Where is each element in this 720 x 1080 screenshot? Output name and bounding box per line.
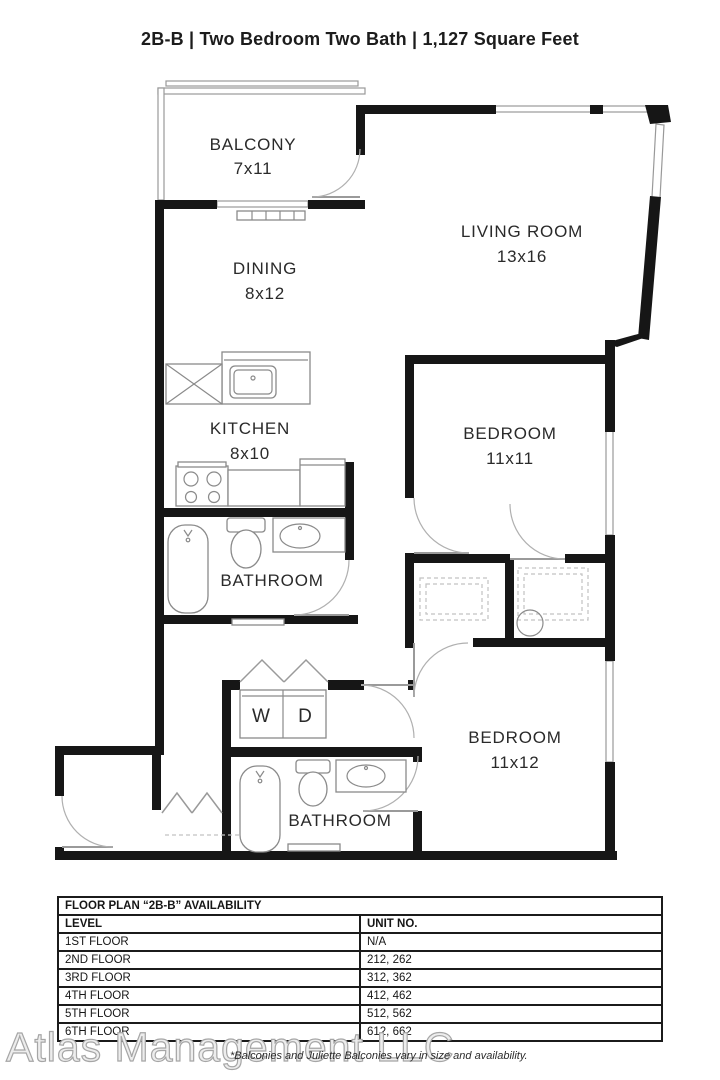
unit-cell: 412, 462 (360, 987, 662, 1005)
bedroom1-label: BEDROOM (463, 424, 556, 443)
washer-label: W (252, 706, 270, 727)
entry-closet-bifold-left (162, 793, 192, 813)
column-header-unit: UNIT NO. (360, 915, 662, 933)
laundry-bifold-door-left (240, 660, 284, 682)
bedroom2-door-arc (414, 643, 468, 697)
window-sill-icon (237, 211, 305, 220)
unit-cell: 512, 562 (360, 1005, 662, 1023)
closet-door-arc (510, 504, 565, 559)
table-row: 4TH FLOOR 412, 462 (58, 987, 662, 1005)
unit-cell: 212, 262 (360, 951, 662, 969)
floor-plan-page: 2B-B | Two Bedroom Two Bath | 1,127 Squa… (0, 0, 720, 1080)
level-cell: 3RD FLOOR (58, 969, 360, 987)
level-cell: 5TH FLOOR (58, 1005, 360, 1023)
bedroom2-window (606, 661, 613, 762)
bedroom1-dims: 11x11 (486, 449, 534, 468)
balcony-sliding-door (217, 201, 308, 207)
bedroom2-label: BEDROOM (468, 728, 561, 747)
bathroom2-recess (288, 844, 340, 851)
living-room-label: LIVING ROOM (461, 222, 583, 241)
floor-plan: BALCONY 7x11 LIVING ROOM 13x16 DINING 8x… (0, 78, 720, 878)
kitchen-sink-icon (230, 366, 276, 398)
bedroom1-door-arc (414, 498, 469, 553)
living-room-dims: 13x16 (497, 247, 547, 266)
level-cell: 4TH FLOOR (58, 987, 360, 1005)
balcony-railing-outer (166, 81, 358, 86)
entry-closet-bifold-right (192, 793, 222, 813)
page-title: 2B-B | Two Bedroom Two Bath | 1,127 Squa… (0, 0, 720, 78)
stove-icon (176, 466, 228, 506)
balcony-dims: 7x11 (234, 159, 273, 178)
table-row: 1ST FLOOR N/A (58, 933, 662, 951)
footer: Atlas Management LLC *Balconies and Juli… (0, 1038, 720, 1080)
kitchen-label: KITCHEN (210, 419, 290, 438)
bathroom1-recess (232, 619, 284, 625)
living-room-window-slant (652, 124, 664, 198)
level-cell: 1ST FLOOR (58, 933, 360, 951)
balcony-railing-left (158, 88, 164, 200)
column-header-level: LEVEL (58, 915, 360, 933)
balcony-door-arc (312, 149, 360, 197)
refrigerator-icon (300, 459, 345, 506)
kitchen-dims: 8x10 (230, 444, 270, 463)
table-header-row: LEVEL UNIT NO. (58, 915, 662, 933)
table-row: 3RD FLOOR 312, 362 (58, 969, 662, 987)
dryer-label: D (298, 706, 312, 727)
table-title: FLOOR PLAN “2B-B” AVAILABILITY (58, 897, 662, 915)
laundry-bifold-door-right (284, 660, 328, 682)
unit-cell: 312, 362 (360, 969, 662, 987)
watermark: Atlas Management LLC (6, 1024, 454, 1071)
closet2-shelf-outline (518, 568, 588, 620)
table-row: 5TH FLOOR 512, 562 (58, 1005, 662, 1023)
balcony-label: BALCONY (210, 135, 297, 154)
level-cell: 2ND FLOOR (58, 951, 360, 969)
kitchen-counter (228, 470, 300, 506)
dining-label: DINING (233, 259, 297, 278)
availability-table: FLOOR PLAN “2B-B” AVAILABILITY LEVEL UNI… (57, 896, 663, 1042)
hall-door-arc (361, 685, 414, 738)
unit-cell: N/A (360, 933, 662, 951)
bedroom1-window (606, 430, 613, 535)
living-room-window-top (494, 106, 648, 112)
balcony-railing-top (158, 88, 365, 94)
bathroom2-label: BATHROOM (288, 811, 391, 830)
toilet-2-icon (296, 760, 330, 773)
balcony-disclaimer-note: *Balconies and Juliette Balconies vary i… (230, 1050, 528, 1062)
table-row: 2ND FLOOR 212, 262 (58, 951, 662, 969)
table-title-row: FLOOR PLAN “2B-B” AVAILABILITY (58, 897, 662, 915)
bedroom2-dims: 11x12 (490, 753, 539, 772)
entry-door-arc (62, 796, 113, 847)
dining-dims: 8x12 (245, 284, 285, 303)
bathroom1-label: BATHROOM (220, 571, 323, 590)
walls (55, 105, 671, 860)
